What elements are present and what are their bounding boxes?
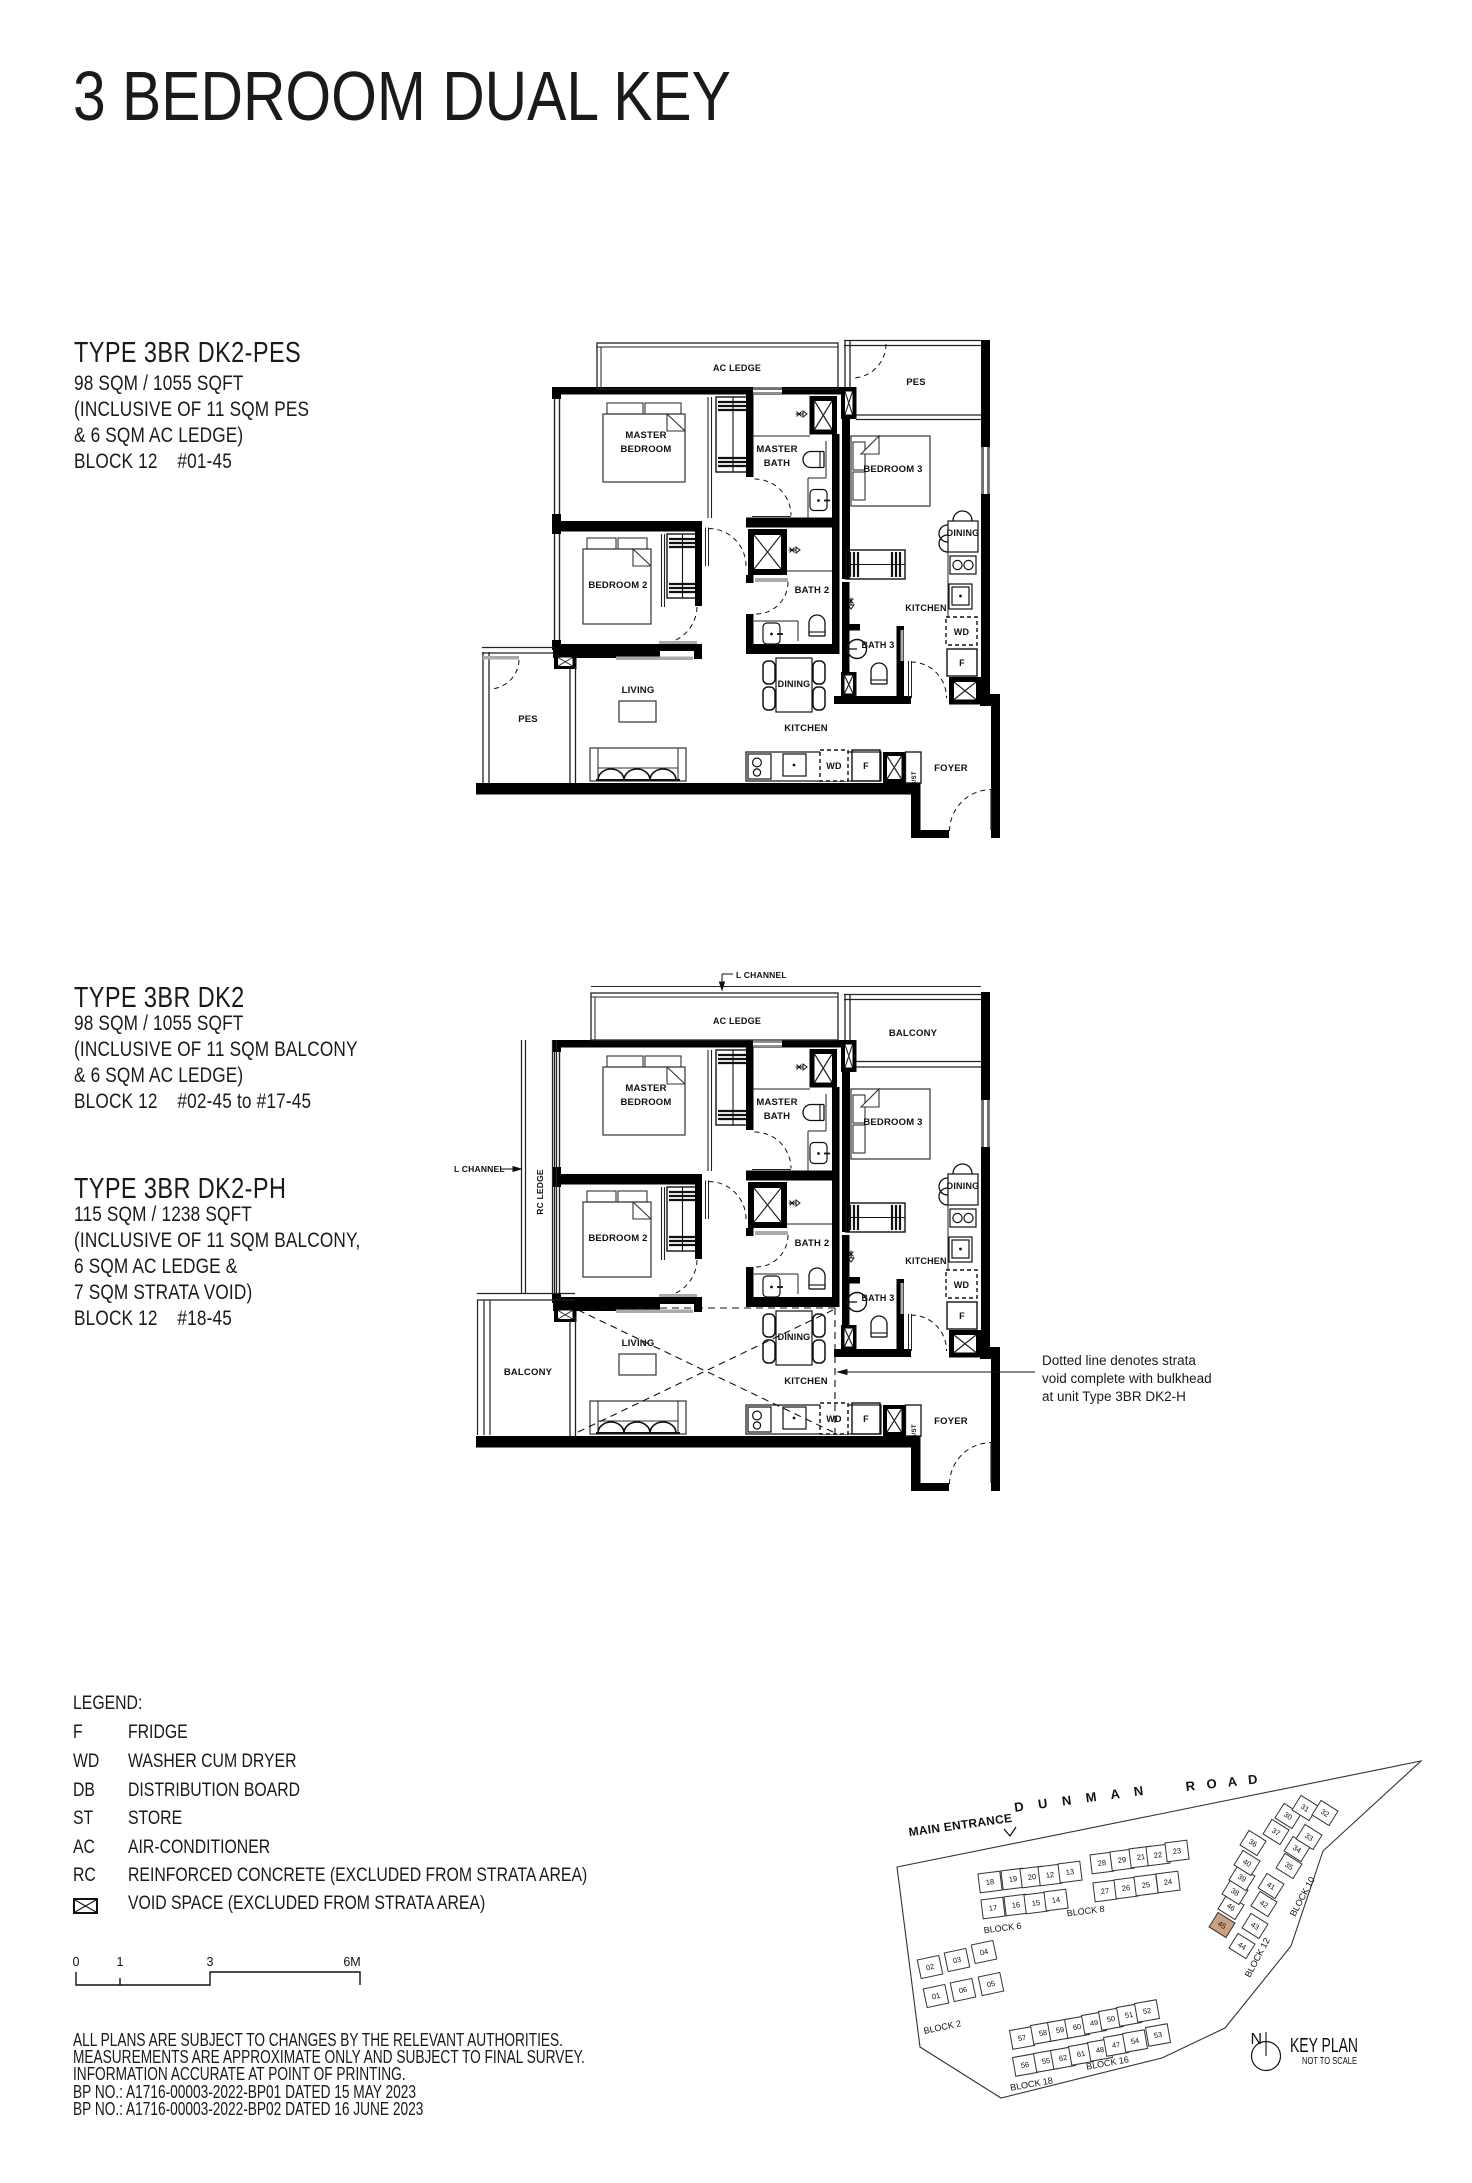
svg-text:52: 52 xyxy=(1142,2006,1152,2016)
svg-text:62: 62 xyxy=(1058,2053,1068,2063)
svg-text:19: 19 xyxy=(1008,1874,1017,1884)
svg-text:AC LEDGE: AC LEDGE xyxy=(713,363,761,373)
svg-text:61: 61 xyxy=(1076,2049,1086,2059)
svg-text:56: 56 xyxy=(1020,2060,1030,2070)
svg-text:53: 53 xyxy=(1153,2030,1163,2040)
svg-text:29: 29 xyxy=(1117,1855,1126,1865)
svg-text:R O A D: R O A D xyxy=(1185,1771,1262,1794)
svg-text:22: 22 xyxy=(1153,1850,1162,1860)
svg-text:17: 17 xyxy=(988,1903,997,1913)
svg-text:28: 28 xyxy=(1097,1858,1106,1868)
svg-text:57: 57 xyxy=(1017,2033,1027,2043)
svg-text:3: 3 xyxy=(207,1955,214,1969)
svg-text:BLOCK 6: BLOCK 6 xyxy=(983,1921,1022,1936)
svg-text:L CHANNEL: L CHANNEL xyxy=(736,970,787,980)
svg-text:51: 51 xyxy=(1124,2010,1134,2020)
svg-text:16: 16 xyxy=(1011,1900,1020,1910)
svg-text:BLOCK 2: BLOCK 2 xyxy=(923,2018,962,2036)
svg-text:L CHANNEL: L CHANNEL xyxy=(454,1164,505,1174)
svg-text:PES: PES xyxy=(906,377,926,388)
svg-text:20: 20 xyxy=(1027,1872,1036,1882)
svg-text:KEY PLAN: KEY PLAN xyxy=(1290,2035,1358,2057)
svg-text:18: 18 xyxy=(985,1877,994,1887)
svg-text:27: 27 xyxy=(1100,1886,1109,1896)
svg-text:58: 58 xyxy=(1038,2028,1048,2038)
svg-text:BLOCK 8: BLOCK 8 xyxy=(1066,1904,1105,1919)
svg-text:MAIN ENTRANCE: MAIN ENTRANCE xyxy=(908,1811,1014,1839)
svg-text:26: 26 xyxy=(1121,1883,1130,1893)
svg-text:BALCONY: BALCONY xyxy=(889,1028,938,1039)
svg-text:13: 13 xyxy=(1065,1867,1074,1877)
svg-text:54: 54 xyxy=(1130,2036,1140,2046)
svg-text:14: 14 xyxy=(1051,1895,1060,1905)
svg-text:N: N xyxy=(1250,2031,1262,2048)
svg-text:12: 12 xyxy=(1045,1870,1054,1880)
svg-text:50: 50 xyxy=(1106,2014,1116,2024)
svg-text:49: 49 xyxy=(1089,2018,1099,2028)
svg-text:RC LEDGE: RC LEDGE xyxy=(535,1169,545,1215)
svg-text:AC LEDGE: AC LEDGE xyxy=(713,1016,761,1026)
svg-text:D U N M A N: D U N M A N xyxy=(1013,1782,1149,1815)
svg-text:48: 48 xyxy=(1095,2045,1105,2055)
svg-text:24: 24 xyxy=(1163,1877,1172,1887)
svg-text:BALCONY: BALCONY xyxy=(504,1367,553,1378)
svg-text:21: 21 xyxy=(1136,1852,1145,1862)
svg-text:0: 0 xyxy=(73,1955,80,1969)
svg-text:55: 55 xyxy=(1041,2056,1051,2066)
svg-text:15: 15 xyxy=(1031,1898,1040,1908)
svg-text:60: 60 xyxy=(1072,2022,1082,2032)
svg-text:59: 59 xyxy=(1055,2025,1065,2035)
svg-text:1: 1 xyxy=(117,1955,124,1969)
svg-text:23: 23 xyxy=(1172,1846,1181,1856)
svg-text:NOT TO SCALE: NOT TO SCALE xyxy=(1302,2056,1357,2067)
svg-text:25: 25 xyxy=(1141,1880,1150,1890)
svg-text:6M: 6M xyxy=(343,1955,360,1969)
svg-text:47: 47 xyxy=(1111,2040,1121,2050)
svg-text:PES: PES xyxy=(518,714,538,725)
